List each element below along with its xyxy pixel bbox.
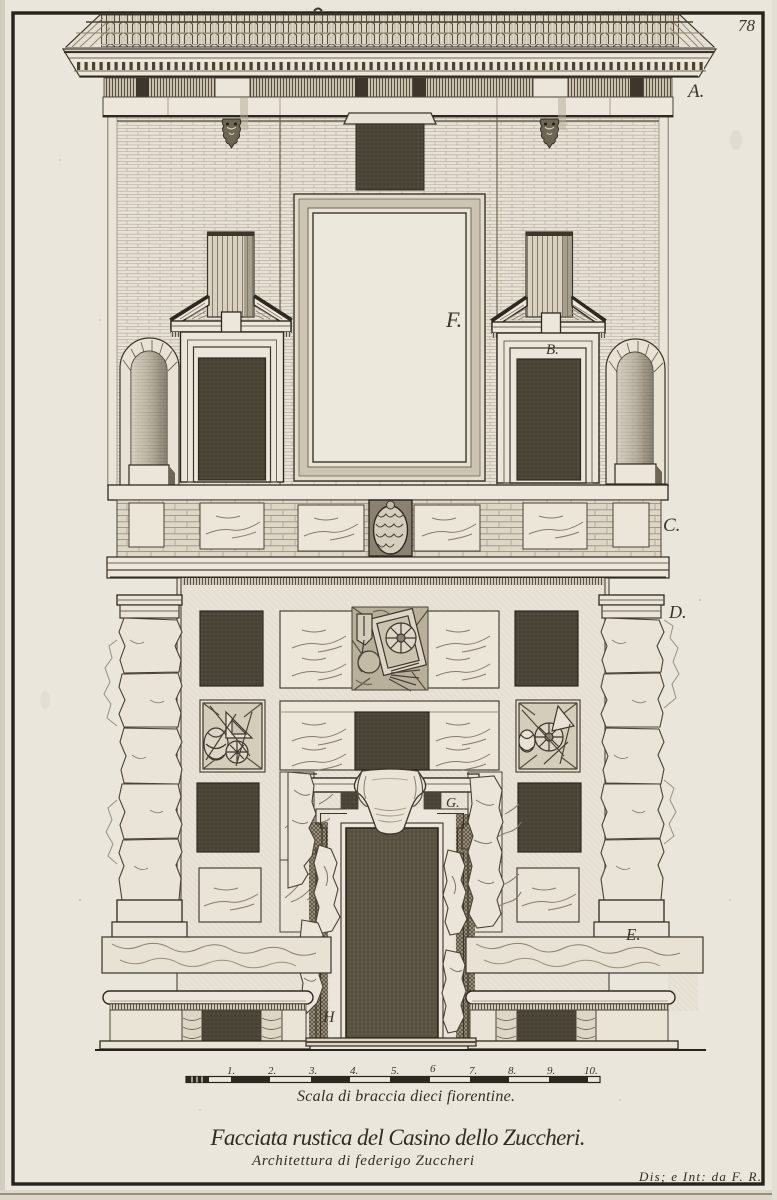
svg-text:2.: 2. <box>268 1065 276 1077</box>
svg-text:Facciata rustica del Casino de: Facciata rustica del Casino dello Zucche… <box>210 1125 586 1150</box>
svg-text:4.: 4. <box>350 1065 358 1077</box>
svg-text:78: 78 <box>738 16 756 35</box>
svg-text:10.: 10. <box>584 1065 598 1077</box>
svg-text:3.: 3. <box>308 1065 317 1077</box>
svg-text:7.: 7. <box>469 1065 477 1077</box>
svg-text:Dis; e Int: da F. R.: Dis; e Int: da F. R. <box>638 1169 761 1184</box>
svg-text:Architettura di federigo Zucch: Architettura di federigo Zuccheri <box>251 1153 474 1169</box>
svg-text:8.: 8. <box>508 1065 516 1077</box>
svg-text:9.: 9. <box>547 1065 555 1077</box>
svg-text:F.: F. <box>445 307 462 332</box>
svg-text:5.: 5. <box>391 1065 399 1077</box>
svg-text:C.: C. <box>663 515 680 536</box>
svg-text:E.: E. <box>625 925 641 944</box>
svg-text:B.: B. <box>546 342 559 358</box>
svg-text:H: H <box>322 1009 336 1026</box>
svg-text:G.: G. <box>446 796 460 811</box>
svg-text:A.: A. <box>686 81 704 102</box>
svg-text:6: 6 <box>430 1063 436 1075</box>
svg-text:D.: D. <box>668 602 687 622</box>
svg-text:1.: 1. <box>227 1065 235 1077</box>
svg-text:Scala di braccia dieci fiorent: Scala di braccia dieci fiorentine. <box>297 1088 515 1105</box>
